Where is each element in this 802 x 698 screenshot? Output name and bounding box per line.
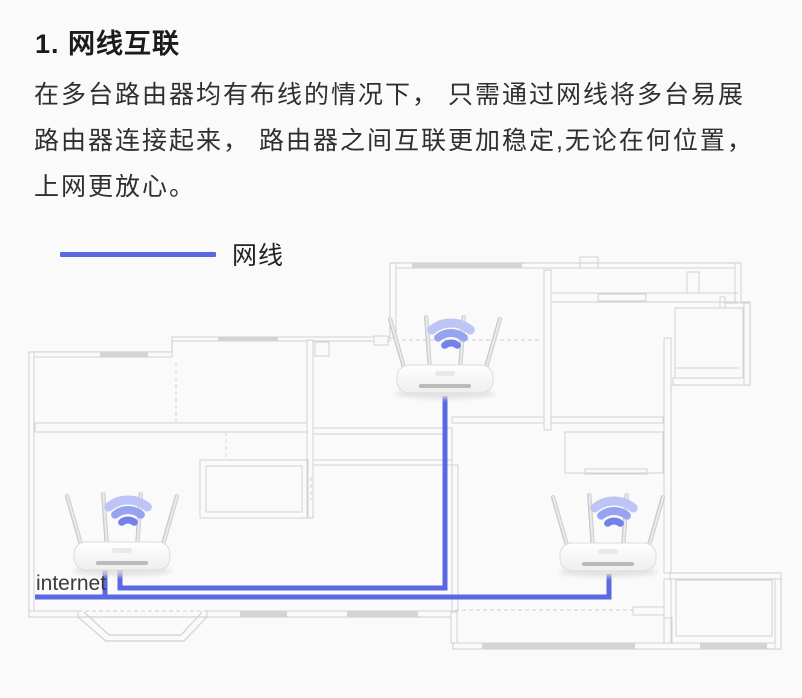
wall — [673, 378, 750, 385]
wifi-signal-arc — [122, 520, 135, 522]
router-right — [551, 493, 666, 577]
wifi-signal-arc — [445, 343, 458, 345]
antenna — [160, 494, 180, 551]
fixture — [687, 272, 699, 293]
wall — [725, 303, 744, 308]
window — [218, 337, 278, 341]
fixture — [206, 466, 302, 512]
bay-window — [84, 612, 202, 635]
window — [240, 611, 287, 617]
wall — [452, 417, 663, 423]
router-vent — [419, 384, 471, 388]
wifi-signal-arc — [109, 500, 148, 507]
antenna — [551, 495, 571, 552]
wifi-signal-arc — [115, 510, 141, 515]
router-body — [560, 543, 656, 571]
wall — [313, 428, 452, 434]
window — [412, 263, 522, 268]
router-vent — [582, 562, 634, 566]
wall — [735, 263, 741, 303]
router-internet — [65, 492, 180, 576]
router-body — [74, 542, 170, 570]
wall — [633, 607, 664, 615]
floorplan-diagram: internet — [0, 0, 802, 698]
window — [482, 643, 635, 649]
wall — [452, 465, 458, 611]
antenna — [424, 315, 432, 373]
fixture — [315, 342, 329, 356]
antenna — [101, 492, 109, 550]
window — [100, 352, 148, 357]
wall — [544, 270, 551, 430]
antenna — [388, 317, 408, 374]
fixture — [598, 294, 646, 301]
fixture — [200, 460, 308, 518]
wall — [35, 423, 308, 432]
wifi-signal-arc — [438, 333, 464, 338]
router-body — [397, 365, 493, 393]
router-top — [388, 315, 503, 399]
wall — [451, 612, 457, 643]
wall — [664, 338, 671, 573]
window — [347, 611, 418, 617]
wall — [313, 460, 452, 465]
router-logo — [112, 548, 132, 553]
internet-label: internet — [36, 572, 106, 595]
wall — [172, 337, 390, 341]
router-logo — [435, 371, 455, 376]
router-vent — [96, 561, 148, 565]
wifi-signal-arc — [608, 521, 621, 523]
wall — [29, 352, 34, 612]
wifi-signal-arc — [432, 323, 471, 330]
antenna — [646, 495, 666, 552]
fixture — [565, 432, 663, 473]
wall — [775, 573, 781, 649]
wall — [664, 579, 671, 643]
wall — [670, 573, 781, 579]
antenna — [587, 493, 595, 551]
window — [700, 643, 767, 649]
wifi-signal-arc — [595, 501, 634, 508]
bay-window — [78, 617, 207, 641]
wall — [374, 336, 388, 345]
fixture — [676, 580, 772, 636]
wall — [744, 303, 750, 385]
wall — [29, 611, 78, 617]
antenna — [65, 494, 85, 551]
antenna — [483, 317, 503, 374]
wifi-signal-arc — [601, 511, 627, 516]
router-logo — [598, 549, 618, 554]
